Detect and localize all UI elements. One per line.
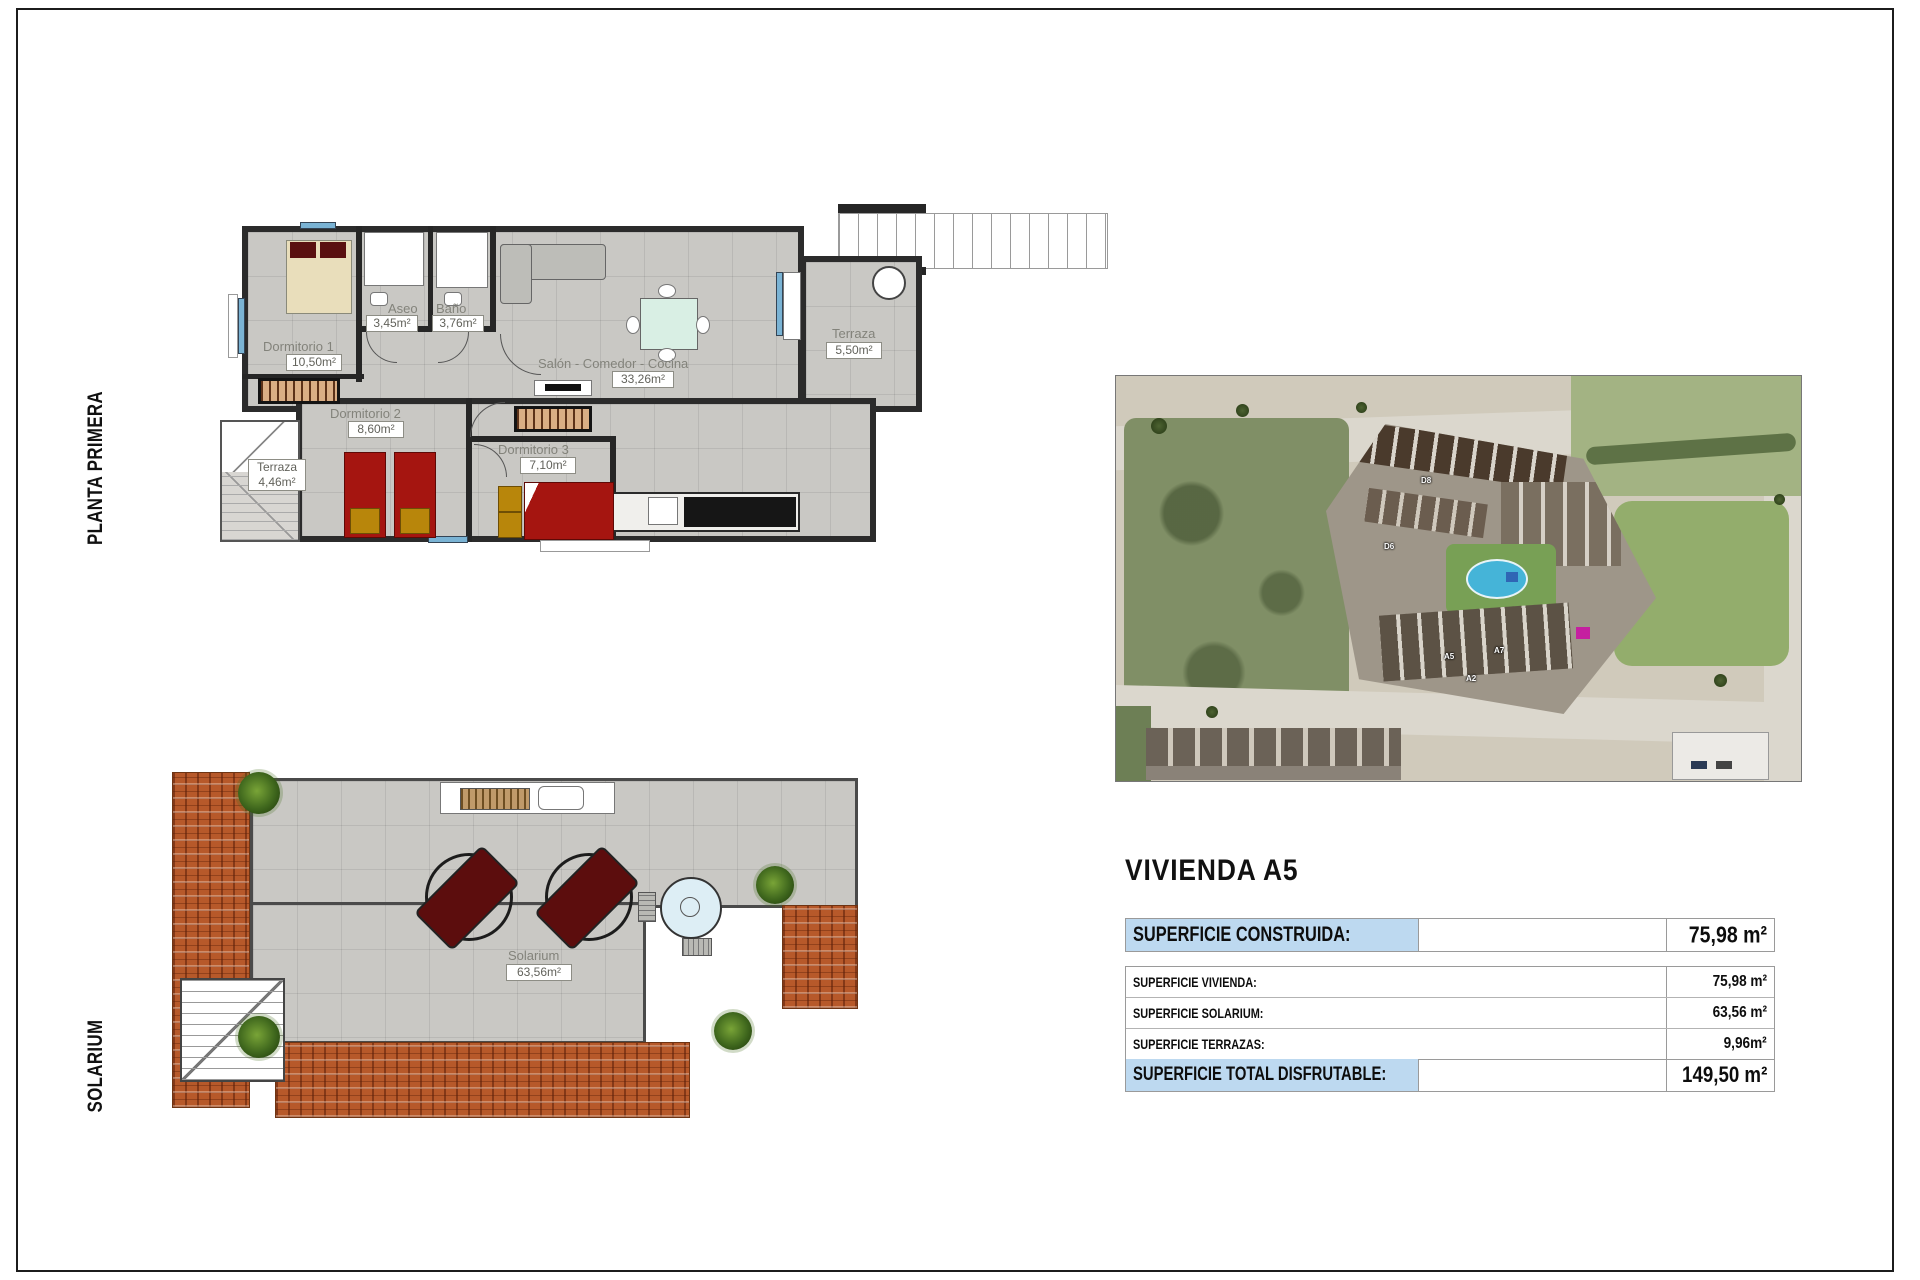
tree-3 bbox=[1356, 402, 1367, 413]
side-label-solarium: SOLARIUM bbox=[84, 986, 108, 1146]
wall-bano-salon bbox=[490, 226, 496, 332]
terraza-izquierda-area: 4,46m² bbox=[249, 475, 305, 490]
table-rows-block: SUPERFICIE VIVIENDA: 75,98 m² SUPERFICIE… bbox=[1125, 966, 1775, 1092]
wall-dorm1-right bbox=[356, 226, 362, 382]
room-label-solarium: Solarium bbox=[508, 948, 559, 963]
row-vivienda-label: SUPERFICIE VIVIENDA: bbox=[1133, 974, 1257, 990]
row-solarium-value: 63,56 m² bbox=[1713, 1004, 1767, 1022]
map-unit-label-d6: D6 bbox=[1384, 542, 1394, 551]
stair-landing-wall bbox=[838, 204, 926, 213]
pillow-dorm2-left bbox=[350, 508, 380, 534]
pillow-dorm2-right bbox=[400, 508, 430, 534]
patio-table-center bbox=[680, 897, 700, 917]
patio-chair-bottom bbox=[682, 938, 712, 956]
tv-screen bbox=[545, 384, 581, 391]
room-label-dormitorio2: Dormitorio 2 bbox=[330, 406, 401, 421]
room-label-aseo: Aseo bbox=[388, 301, 418, 316]
table-row-vivienda: SUPERFICIE VIVIENDA: 75,98 m² bbox=[1126, 967, 1774, 998]
header-label: SUPERFICIE CONSTRUIDA: bbox=[1133, 923, 1351, 947]
plan-sheet-page: PLANTA PRIMERA SOLARIUM bbox=[0, 0, 1920, 1280]
map-unit-label-a2: A2 bbox=[1466, 674, 1476, 683]
pillow-dorm3-bottom bbox=[498, 512, 522, 538]
room-area-dormitorio2: 8,60m² bbox=[348, 421, 404, 438]
map-unit-label-d8: D8 bbox=[1421, 476, 1431, 485]
unit-title-text: VIVIENDA A5 bbox=[1125, 854, 1298, 888]
house-row-bottom bbox=[1379, 602, 1573, 681]
room-label-dormitorio3: Dormitorio 3 bbox=[498, 442, 569, 457]
parked-car-1 bbox=[1691, 761, 1707, 769]
plant-bottom bbox=[714, 1012, 752, 1050]
swimming-pool bbox=[1466, 559, 1528, 599]
table-row-solarium: SUPERFICIE SOLARIUM: 63,56 m² bbox=[1126, 997, 1774, 1029]
window-sill-dorm1 bbox=[228, 294, 238, 358]
row-terrazas-label: SUPERFICIE TERRAZAS: bbox=[1133, 1036, 1265, 1052]
wardrobe-dorm3 bbox=[514, 406, 592, 432]
blue-roof-unit bbox=[1506, 572, 1518, 582]
window-dorm1-top bbox=[300, 222, 336, 229]
table-row-total: SUPERFICIE TOTAL DISFRUTABLE: 149,50 m² bbox=[1126, 1059, 1774, 1091]
table-header-row: SUPERFICIE CONSTRUIDA: 75,98 m² bbox=[1125, 918, 1775, 952]
total-label: SUPERFICIE TOTAL DISFRUTABLE: bbox=[1133, 1064, 1386, 1086]
row-solarium-label: SUPERFICIE SOLARIUM: bbox=[1133, 1005, 1263, 1021]
header-value: 75,98 m² bbox=[1689, 922, 1767, 949]
pillow-dorm1-left bbox=[290, 242, 316, 258]
row-vivienda-value: 75,98 m² bbox=[1713, 973, 1767, 991]
shower-aseo bbox=[364, 232, 424, 286]
wardrobe-dorm1 bbox=[258, 378, 340, 404]
total-value: 149,50 m² bbox=[1682, 1062, 1767, 1088]
room-area-aseo: 3,45m² bbox=[366, 315, 418, 332]
kitchen-appliances bbox=[684, 497, 796, 527]
roof-bottom-strip bbox=[275, 1042, 690, 1118]
outdoor-sink bbox=[538, 786, 584, 810]
dining-chair-right bbox=[696, 316, 710, 334]
dining-chair-top bbox=[658, 284, 676, 298]
bbq-grill bbox=[460, 788, 530, 810]
side-label-planta-primera: PLANTA PRIMERA bbox=[84, 388, 108, 548]
tree-4 bbox=[1714, 674, 1727, 687]
magenta-roof-unit bbox=[1576, 627, 1590, 639]
plant-right bbox=[756, 866, 794, 904]
terrace-door-leaf bbox=[783, 272, 801, 340]
white-building bbox=[1672, 732, 1769, 780]
window-salon-terraza bbox=[776, 272, 783, 336]
wall-dorm2-dorm3 bbox=[466, 398, 472, 542]
bed-dorm3 bbox=[524, 482, 614, 540]
dining-chair-left bbox=[626, 316, 640, 334]
kitchen-sink bbox=[648, 497, 678, 525]
terraza-izquierda-name: Terraza bbox=[249, 460, 305, 475]
dining-table bbox=[640, 298, 698, 350]
room-label-salon: Salón - Comedor - Cocina bbox=[538, 356, 688, 371]
room-area-solarium: 63,56m² bbox=[506, 964, 572, 981]
window-dorm1 bbox=[238, 298, 245, 354]
row-terrazas-value: 9,96m² bbox=[1724, 1035, 1767, 1053]
sofa-chaise bbox=[500, 244, 532, 304]
room-area-bano: 3,76m² bbox=[432, 315, 484, 332]
house-row-mid-left bbox=[1364, 488, 1488, 538]
room-label-terraza-izquierda: Terraza 4,46m² bbox=[248, 459, 306, 491]
room-area-salon: 33,26m² bbox=[612, 371, 674, 388]
bathtub-bano bbox=[436, 232, 488, 288]
terrace-round-table bbox=[872, 266, 906, 300]
buildings-shadow-strip bbox=[1146, 766, 1401, 780]
room-label-terraza-superior: Terraza bbox=[832, 326, 875, 341]
plant-top-left bbox=[238, 772, 280, 814]
room-area-dormitorio1: 10,50m² bbox=[286, 354, 342, 371]
roof-right-patch bbox=[782, 905, 858, 1009]
room-label-dormitorio1: Dormitorio 1 bbox=[263, 339, 334, 354]
unit-title: VIVIENDA A5 bbox=[1125, 854, 1322, 888]
site-aerial-map: D8 D6 A5 A7 A2 bbox=[1115, 375, 1802, 782]
toilet-aseo bbox=[370, 292, 388, 306]
pillow-dorm1-right bbox=[320, 242, 346, 258]
room-area-dormitorio3: 7,10m² bbox=[520, 457, 576, 474]
room-label-bano: Baño bbox=[436, 301, 466, 316]
table-row-terrazas: SUPERFICIE TERRAZAS: 9,96m² bbox=[1126, 1028, 1774, 1060]
header-value-divider bbox=[1666, 919, 1667, 951]
parked-car-2 bbox=[1716, 761, 1732, 769]
tree-2 bbox=[1236, 404, 1249, 417]
map-unit-label-a5: A5 bbox=[1444, 652, 1454, 661]
tree-5 bbox=[1774, 494, 1785, 505]
tree-6 bbox=[1206, 706, 1218, 718]
map-unit-label-a7: A7 bbox=[1494, 646, 1504, 655]
entrance-sill bbox=[540, 540, 650, 552]
plant-mid-left bbox=[238, 1016, 280, 1058]
room-area-terraza-superior: 5,50m² bbox=[826, 342, 882, 359]
patio-chair-left bbox=[638, 892, 656, 922]
tree-1 bbox=[1151, 418, 1167, 434]
pillow-dorm3-top bbox=[498, 486, 522, 512]
